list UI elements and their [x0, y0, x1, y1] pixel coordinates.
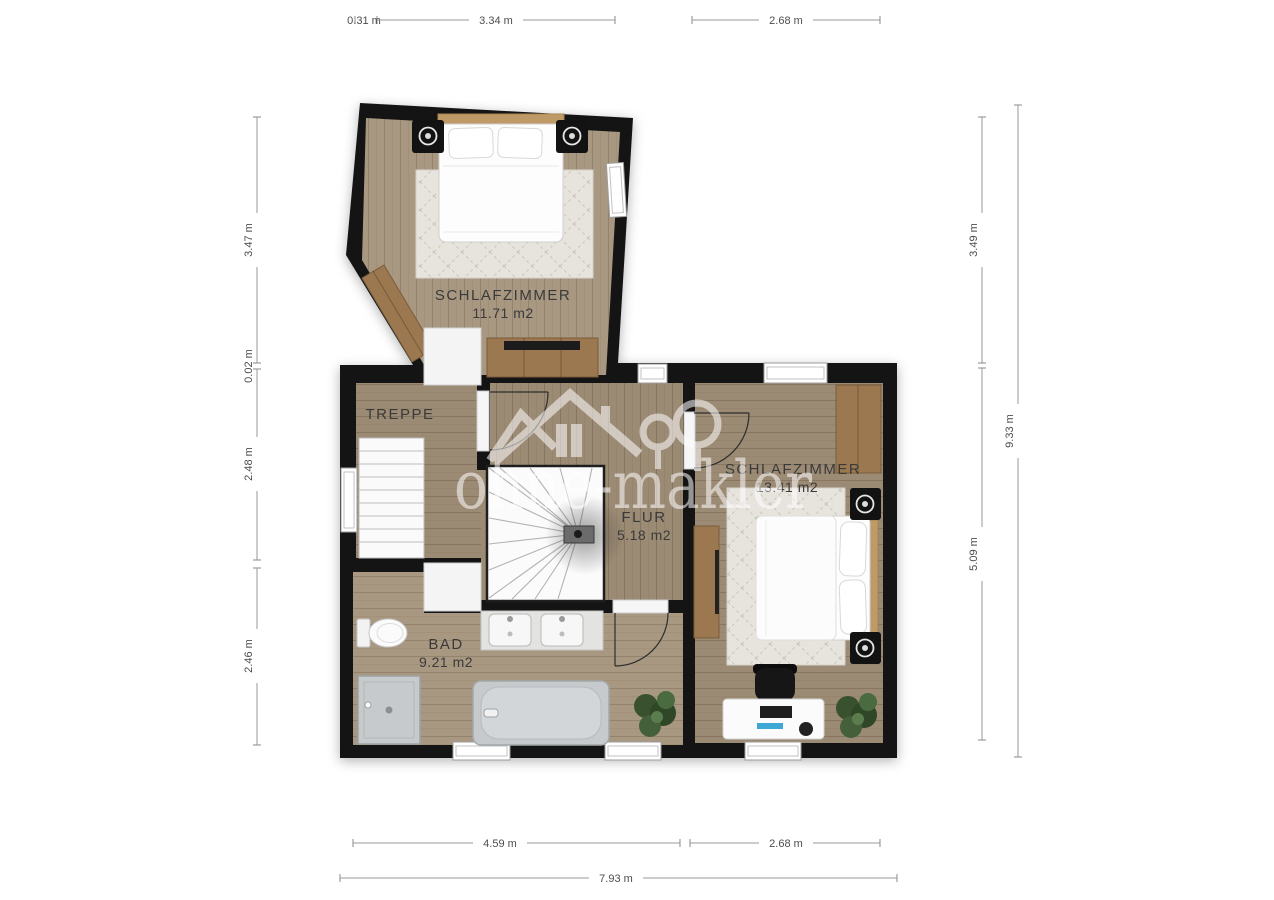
dim-left: 3.47 m 0.02 m 2.48 m 2.46 m [243, 117, 261, 745]
closet-box [424, 563, 481, 611]
dim-label: 2.46 m [243, 639, 255, 673]
room-area-bedroom1: 11.71 m2 [472, 305, 533, 321]
dim-label: 9.33 m [1004, 414, 1016, 448]
room-label-bad: BAD [428, 636, 463, 653]
dim-label: 5.09 m [968, 537, 980, 571]
dim-label: 0.31 m [347, 15, 381, 27]
double-bed-icon [756, 516, 878, 640]
room-area-flur: 5.18 m2 [617, 527, 671, 543]
dim-label: 2.68 m [769, 15, 803, 27]
floorplan-page: SCHLAFZIMMER 11.71 m2 TREPPE [0, 0, 1274, 900]
dresser-tv-icon [487, 338, 598, 377]
dim-label: 0.02 m [243, 349, 255, 383]
dim-label: 3.34 m [479, 15, 513, 27]
dim-label: 4.59 m [483, 838, 517, 850]
sideboard-icon [694, 526, 719, 638]
window-icon [606, 163, 626, 218]
dim-top: 0.31 m 3.34 m 2.68 m [347, 15, 880, 27]
window-icon [745, 742, 801, 760]
nightstand-speaker-icon [556, 120, 588, 153]
dim-label: 2.68 m [769, 838, 803, 850]
room-label-bedroom1: SCHLAFZIMMER [435, 287, 571, 304]
dim-label: 3.49 m [968, 223, 980, 257]
nightstand-speaker-icon [412, 120, 444, 153]
window-icon [605, 742, 661, 760]
watermark-text: ohne-makler [454, 447, 812, 524]
dim-label: 3.47 m [243, 223, 255, 257]
straight-stairs-icon [359, 438, 424, 558]
dim-bottom: 4.59 m 2.68 m 7.93 m [340, 838, 897, 885]
dim-label: 2.48 m [243, 447, 255, 481]
room-label-treppe: TREPPE [365, 406, 434, 423]
shower-icon [358, 676, 420, 744]
stair-landing [424, 328, 481, 385]
dim-label: 7.93 m [599, 873, 633, 885]
double-bed-icon [438, 114, 564, 242]
floorplan-svg: SCHLAFZIMMER 11.71 m2 TREPPE [0, 0, 1274, 900]
room-area-bad: 9.21 m2 [419, 654, 473, 670]
nightstand-speaker-icon [850, 632, 881, 664]
dim-right: 3.49 m 5.09 m 9.33 m [968, 105, 1022, 757]
nightstand-speaker-icon [850, 488, 881, 520]
vanity-sinks-icon [481, 611, 603, 650]
window-icon [638, 364, 667, 383]
bathtub-icon [473, 681, 609, 745]
window-icon [764, 363, 827, 383]
toilet-icon [357, 619, 407, 647]
window-icon [341, 468, 357, 532]
